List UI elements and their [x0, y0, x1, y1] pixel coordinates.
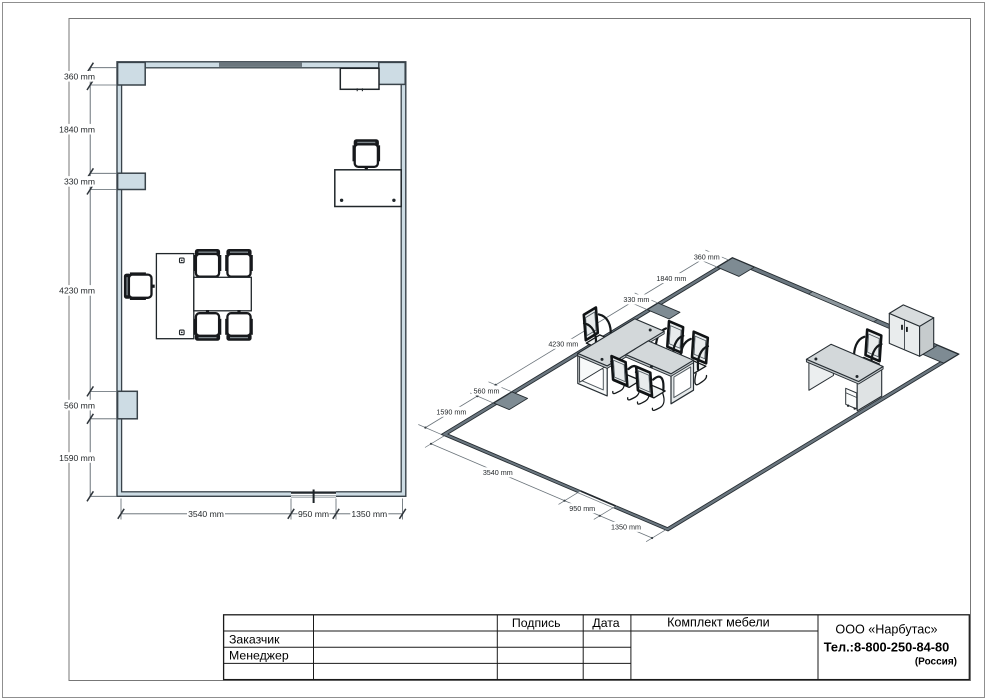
svg-text:1840 mm: 1840 mm: [656, 274, 686, 283]
svg-text:Менеджер: Менеджер: [229, 649, 289, 663]
svg-text:Заказчик: Заказчик: [229, 632, 280, 646]
svg-text:360 mm: 360 mm: [694, 252, 720, 261]
svg-text:1350 mm: 1350 mm: [351, 509, 387, 519]
svg-text:Дата: Дата: [592, 616, 619, 630]
svg-text:1840 mm: 1840 mm: [59, 124, 95, 134]
svg-text:330 mm: 330 mm: [64, 177, 95, 187]
svg-text:Комплект мебели: Комплект мебели: [667, 616, 770, 630]
svg-text:330 mm: 330 mm: [623, 295, 649, 304]
svg-text:560 mm: 560 mm: [474, 386, 500, 395]
svg-text:950 mm: 950 mm: [298, 509, 329, 519]
svg-text:1590 mm: 1590 mm: [436, 408, 466, 417]
svg-text:3540 mm: 3540 mm: [188, 509, 224, 519]
svg-text:1350 mm: 1350 mm: [611, 523, 641, 532]
svg-text:360 mm: 360 mm: [64, 72, 95, 82]
svg-text:(Россия): (Россия): [915, 656, 957, 667]
svg-text:ООО «Нарбутас»: ООО «Нарбутас»: [835, 623, 937, 637]
svg-text:4230 mm: 4230 mm: [548, 340, 578, 349]
svg-text:Тел.:8-800-250-84-80: Тел.:8-800-250-84-80: [824, 640, 950, 655]
svg-text:4230 mm: 4230 mm: [59, 286, 95, 296]
svg-text:950 mm: 950 mm: [569, 504, 595, 513]
svg-text:560 mm: 560 mm: [64, 400, 95, 410]
svg-text:Подпись: Подпись: [512, 616, 561, 630]
svg-text:3540 mm: 3540 mm: [483, 468, 513, 477]
svg-text:1590 mm: 1590 mm: [59, 453, 95, 463]
